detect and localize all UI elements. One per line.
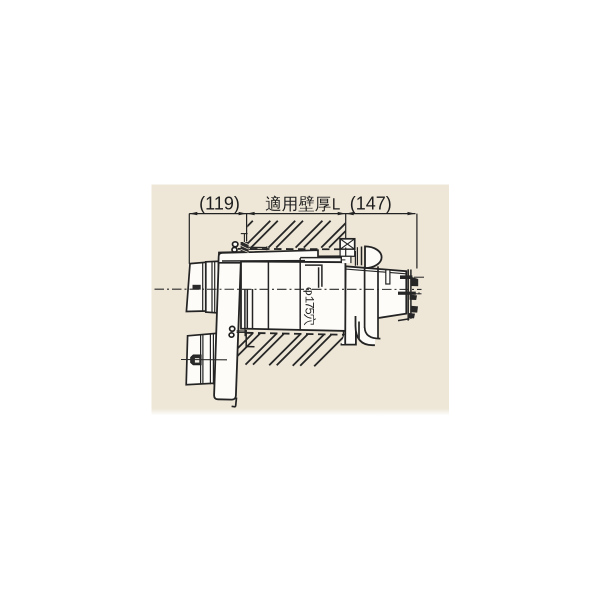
svg-text:(147): (147) bbox=[350, 194, 392, 214]
svg-text:(119): (119) bbox=[199, 194, 240, 214]
